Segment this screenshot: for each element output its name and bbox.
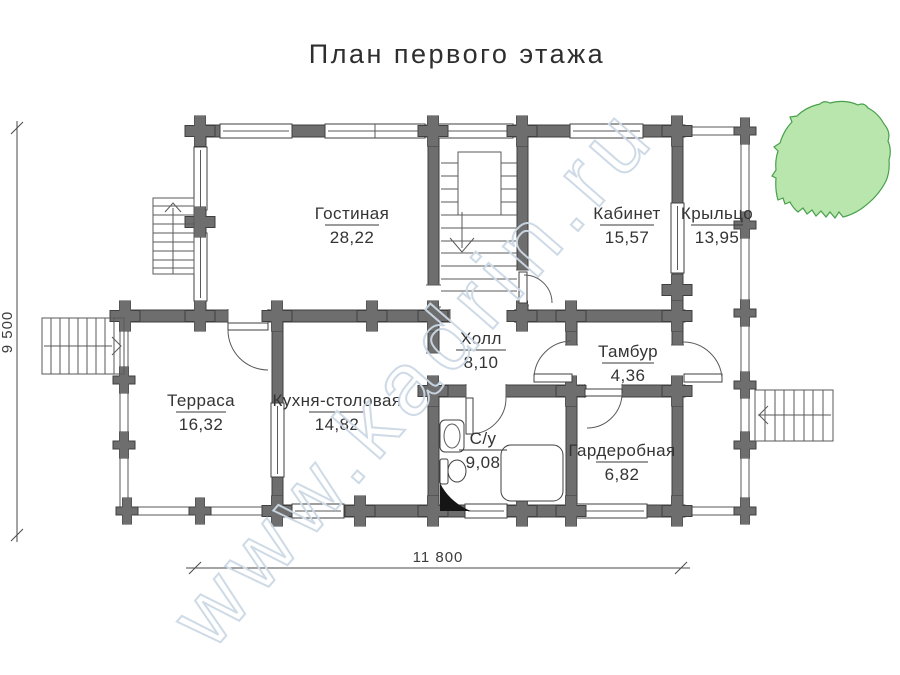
floor-plan-canvas: Гостиная 28,22 Кабинет 15,57 Крыльцо 13,… bbox=[0, 0, 900, 675]
watermark-text: www.kadrin.ru bbox=[151, 84, 674, 665]
window bbox=[220, 124, 292, 138]
dimension-width-label: 11 800 bbox=[413, 549, 464, 566]
side-exterior-stair bbox=[153, 198, 194, 274]
room-name: Терраса bbox=[167, 391, 235, 410]
fixtures-layer bbox=[440, 420, 563, 511]
room-name: Гардеробная bbox=[568, 441, 675, 460]
terrace-post bbox=[189, 498, 211, 524]
room-name: С/у bbox=[470, 429, 497, 448]
room-label-terrasa: Терраса 16,32 bbox=[167, 391, 235, 434]
door-tambur-porch bbox=[683, 342, 722, 382]
window bbox=[465, 504, 507, 518]
room-area: 9,08 bbox=[466, 453, 501, 472]
room-area: 6,82 bbox=[605, 465, 640, 484]
porch-post bbox=[734, 498, 756, 524]
window bbox=[194, 147, 207, 210]
room-area: 13,95 bbox=[695, 228, 740, 247]
terrace-post bbox=[113, 432, 135, 458]
dimension-height-label: 9 500 bbox=[0, 311, 16, 354]
room-name: Гостиная bbox=[315, 204, 390, 223]
room-label-su: С/у 9,08 bbox=[459, 429, 507, 472]
room-label-tambur: Тамбур 4,36 bbox=[598, 342, 658, 385]
terrace-post bbox=[116, 498, 138, 524]
toilet-bowl bbox=[448, 460, 466, 482]
door-livingroom-terrace bbox=[228, 323, 268, 370]
tree-illustration bbox=[772, 101, 890, 218]
room-area: 16,32 bbox=[179, 415, 224, 434]
stair-up-arrow bbox=[165, 203, 181, 274]
room-area: 4,36 bbox=[611, 366, 646, 385]
porch-post bbox=[734, 118, 756, 144]
room-area: 15,57 bbox=[605, 228, 650, 247]
shower bbox=[501, 445, 563, 501]
toilet-tank bbox=[440, 459, 448, 484]
tree-crown bbox=[772, 101, 890, 218]
terrace-entry-steps bbox=[42, 318, 124, 374]
porch-post bbox=[734, 372, 756, 398]
window bbox=[194, 233, 207, 301]
floor-plan-page: Гостиная 28,22 Кабинет 15,57 Крыльцо 13,… bbox=[0, 0, 900, 675]
steps-arrow bbox=[44, 337, 121, 355]
door-tambur-wardrobe bbox=[585, 389, 622, 428]
room-area: 28,22 bbox=[330, 228, 375, 247]
room-name: Крыльцо bbox=[681, 204, 753, 223]
watermark: www.kadrin.ru bbox=[151, 84, 674, 665]
room-label-garderobnaya: Гардеробная 6,82 bbox=[568, 441, 675, 484]
porch-post bbox=[734, 432, 756, 458]
porch-entry-steps bbox=[755, 390, 833, 441]
plan-title: План первого этажа bbox=[309, 39, 605, 69]
window bbox=[325, 124, 425, 138]
room-label-gostinaya: Гостиная 28,22 bbox=[315, 204, 390, 247]
room-name: Тамбур bbox=[598, 342, 658, 361]
porch-post bbox=[734, 300, 756, 326]
dimension-left: 9 500 bbox=[0, 121, 23, 542]
